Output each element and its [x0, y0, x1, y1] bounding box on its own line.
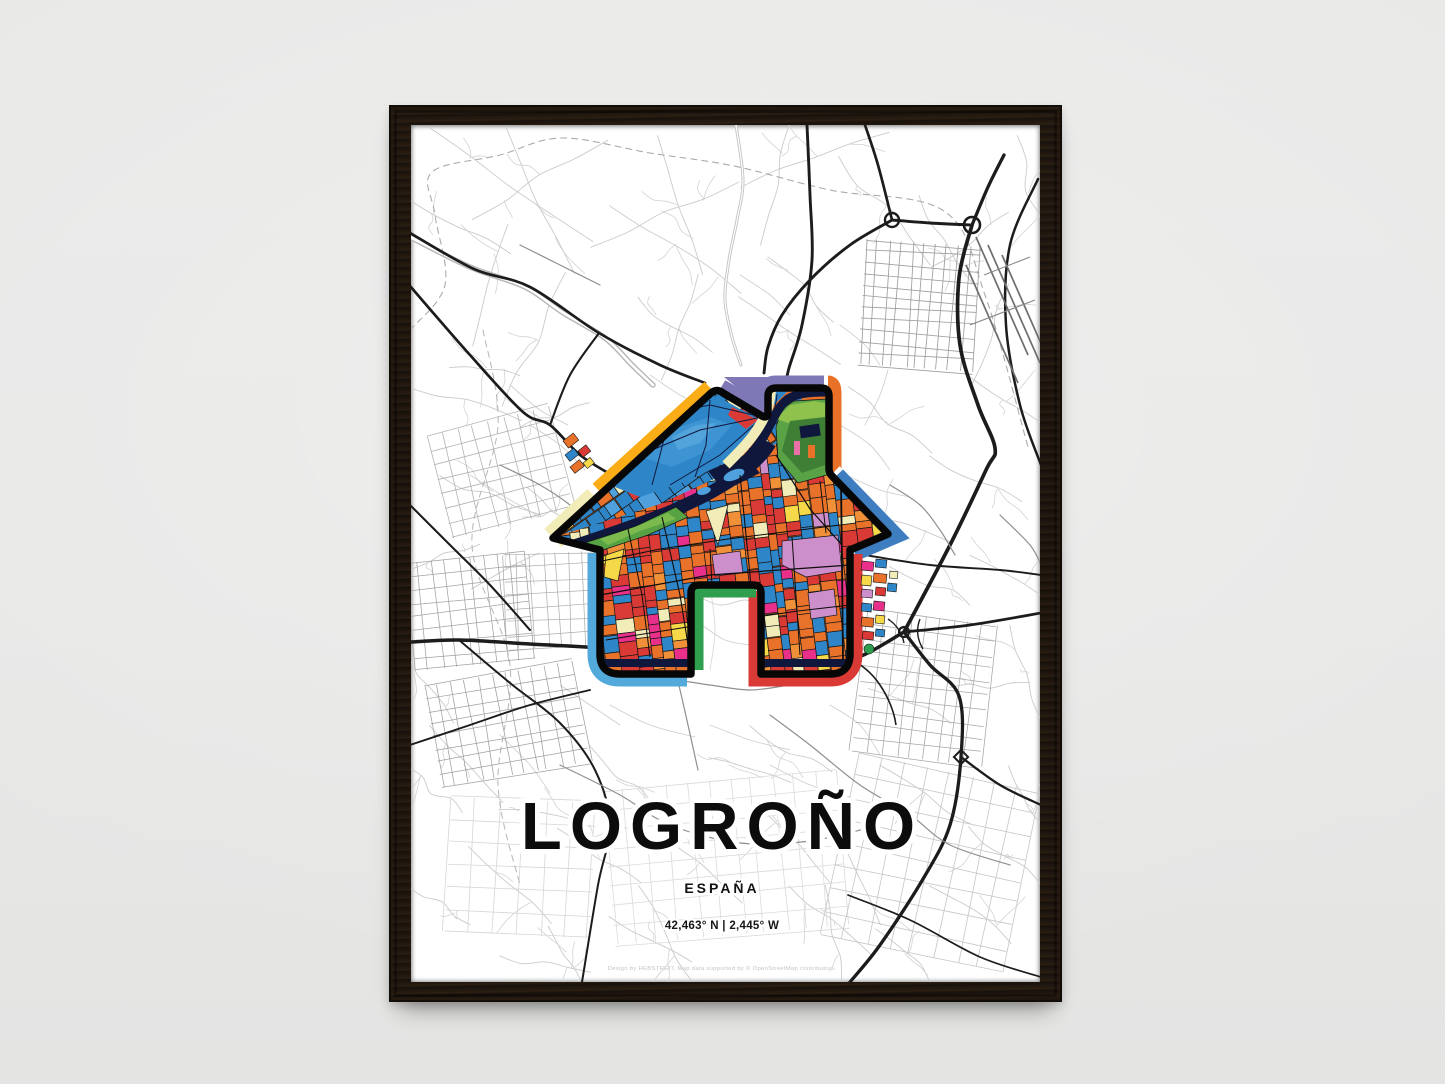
svg-text:LOGROÑO: LOGROÑO — [521, 789, 923, 864]
svg-text:Design by HEBSTREIT, Map data: Design by HEBSTREIT, Map data supported … — [608, 965, 837, 972]
svg-text:ESPAÑA: ESPAÑA — [684, 879, 759, 896]
svg-text:42,463° N | 2,445° W: 42,463° N | 2,445° W — [665, 920, 779, 932]
